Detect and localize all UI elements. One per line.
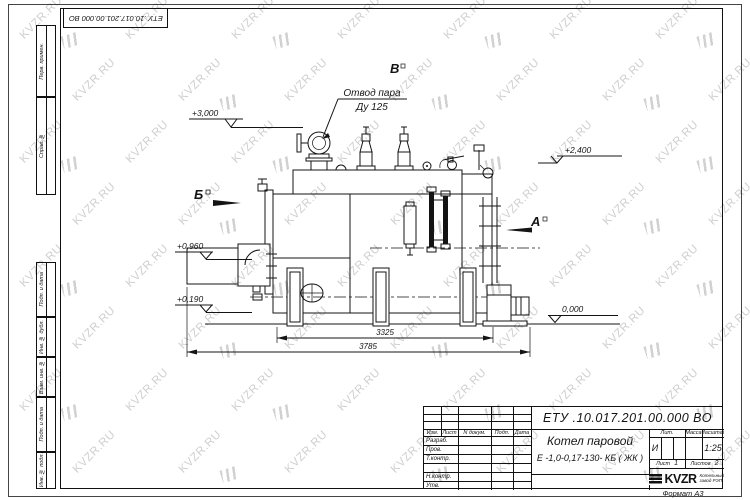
view-label-v: В — [390, 61, 405, 76]
sight-glass — [301, 284, 323, 302]
water-column-gauge — [404, 202, 416, 255]
dimension-3325: 3325 — [277, 327, 493, 343]
callout-steam-outlet: Отвод пара Ду 125 — [322, 88, 407, 139]
callout-line1: Отвод пара — [343, 88, 401, 99]
svg-text:3785: 3785 — [359, 342, 377, 351]
fan-pump-unit — [483, 285, 529, 326]
lever-valve — [440, 156, 464, 170]
view-label-a: А — [506, 214, 547, 233]
level-indicator-gauge — [427, 187, 450, 252]
svg-text:3325: 3325 — [376, 328, 394, 337]
view-label-b: Б — [194, 187, 241, 206]
rear-flange — [479, 197, 501, 283]
svg-text:А: А — [530, 214, 540, 229]
svg-text:+0,960: +0,960 — [177, 241, 204, 251]
boiler-side-view: Отвод пара Ду 125 Б В А +3,000 +2,400 — [0, 0, 750, 500]
elevation-3000: +3,000 — [189, 108, 303, 128]
svg-text:0,000: 0,000 — [562, 304, 584, 314]
dimension-3785: 3785 — [187, 287, 530, 357]
elevation-2400: +2,400 — [538, 145, 622, 163]
safety-valve-2 — [395, 127, 413, 170]
drawing-sheet: ЕТУ .10.017.201.00.000 ВО Перв. примен. … — [0, 0, 750, 500]
svg-text:+0,190: +0,190 — [177, 294, 204, 304]
small-dome — [336, 165, 346, 170]
right-end-pipe — [474, 145, 493, 178]
elevation-0000: 0,000 — [548, 304, 618, 323]
burner-assembly — [187, 244, 277, 292]
svg-text:Б: Б — [194, 187, 203, 202]
elevation-0190: +0,190 — [175, 294, 252, 313]
top-nozzle — [423, 162, 431, 170]
callout-line2: Ду 125 — [355, 102, 388, 113]
svg-text:В: В — [390, 61, 399, 76]
safety-valve-1 — [357, 127, 375, 170]
svg-text:+3,000: +3,000 — [192, 108, 219, 118]
svg-text:+2,400: +2,400 — [565, 145, 592, 155]
